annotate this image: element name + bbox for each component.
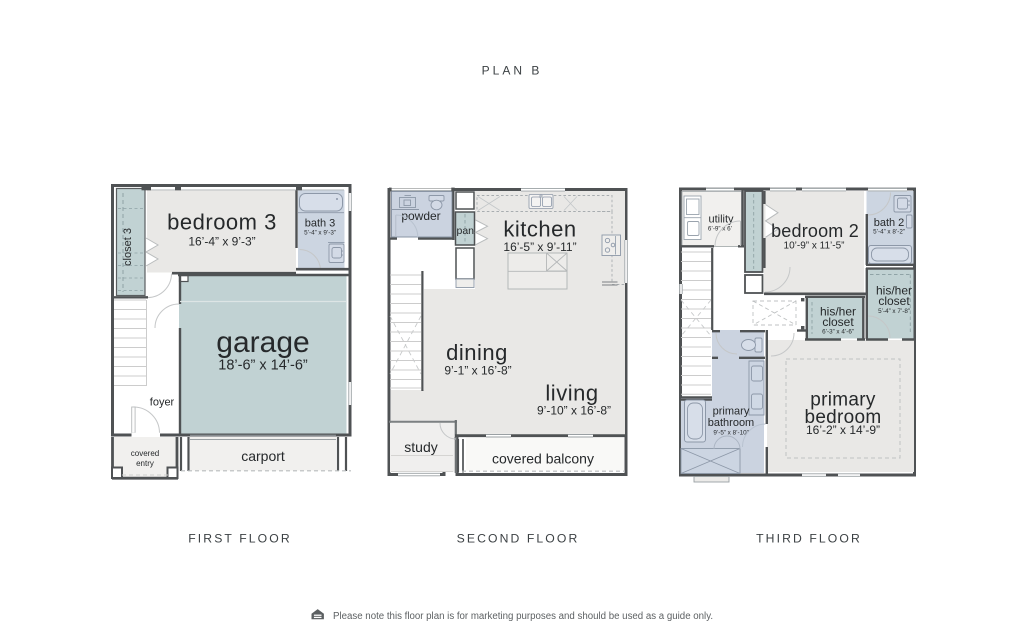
svg-text:9’-1” x 16’-8”: 9’-1” x 16’-8” <box>444 364 511 378</box>
svg-text:closet: closet <box>822 315 854 329</box>
svg-text:16’-2” x 14’-9”: 16’-2” x 14’-9” <box>806 423 880 437</box>
svg-text:powder: powder <box>401 209 440 223</box>
svg-text:bedroom 2: bedroom 2 <box>771 221 859 241</box>
svg-text:dining: dining <box>446 340 508 365</box>
svg-text:THIRD FLOOR: THIRD FLOOR <box>756 532 862 546</box>
svg-text:utility: utility <box>708 214 734 226</box>
svg-text:9’-10” x 16’-8”: 9’-10” x 16’-8” <box>537 404 611 418</box>
svg-text:16’-5” x 9’-11”: 16’-5” x 9’-11” <box>503 240 576 254</box>
svg-text:kitchen: kitchen <box>503 217 576 242</box>
svg-text:entry: entry <box>136 459 154 468</box>
svg-text:closet: closet <box>878 294 910 308</box>
svg-text:bath 2: bath 2 <box>874 217 905 229</box>
svg-text:covered balcony: covered balcony <box>492 451 594 467</box>
svg-text:study: study <box>404 439 437 455</box>
svg-text:garage: garage <box>216 326 309 359</box>
svg-text:10’-9” x 11’-5”: 10’-9” x 11’-5” <box>784 241 845 252</box>
svg-text:SECOND FLOOR: SECOND FLOOR <box>457 532 580 546</box>
svg-text:5’-4” x 8’-2”: 5’-4” x 8’-2” <box>873 229 905 236</box>
svg-text:primary: primary <box>713 406 750 418</box>
svg-text:18’-6” x 14’-6”: 18’-6” x 14’-6” <box>218 358 308 374</box>
svg-text:covered: covered <box>131 449 159 458</box>
svg-text:foyer: foyer <box>150 397 175 409</box>
svg-text:Please note this floor plan is: Please note this floor plan is for marke… <box>333 611 713 622</box>
svg-text:6’-3” x 4’-6”: 6’-3” x 4’-6” <box>822 329 854 336</box>
svg-text:5’-4” x 9’-3”: 5’-4” x 9’-3” <box>304 230 336 237</box>
svg-text:carport: carport <box>241 448 285 464</box>
svg-text:bedroom 3: bedroom 3 <box>167 210 277 235</box>
svg-text:16’-4” x 9’-3”: 16’-4” x 9’-3” <box>188 235 255 249</box>
svg-text:9’-5” x 8’-10”: 9’-5” x 8’-10” <box>713 430 748 437</box>
svg-text:5’-4” x 7’-8”: 5’-4” x 7’-8” <box>878 308 910 315</box>
svg-text:PLAN B: PLAN B <box>482 64 543 78</box>
svg-text:FIRST FLOOR: FIRST FLOOR <box>188 532 291 546</box>
svg-text:living: living <box>545 381 598 406</box>
svg-text:bathroom: bathroom <box>708 417 754 429</box>
svg-text:bath 3: bath 3 <box>305 218 336 230</box>
svg-text:closet 3: closet 3 <box>122 228 134 266</box>
svg-text:pan: pan <box>457 225 475 237</box>
